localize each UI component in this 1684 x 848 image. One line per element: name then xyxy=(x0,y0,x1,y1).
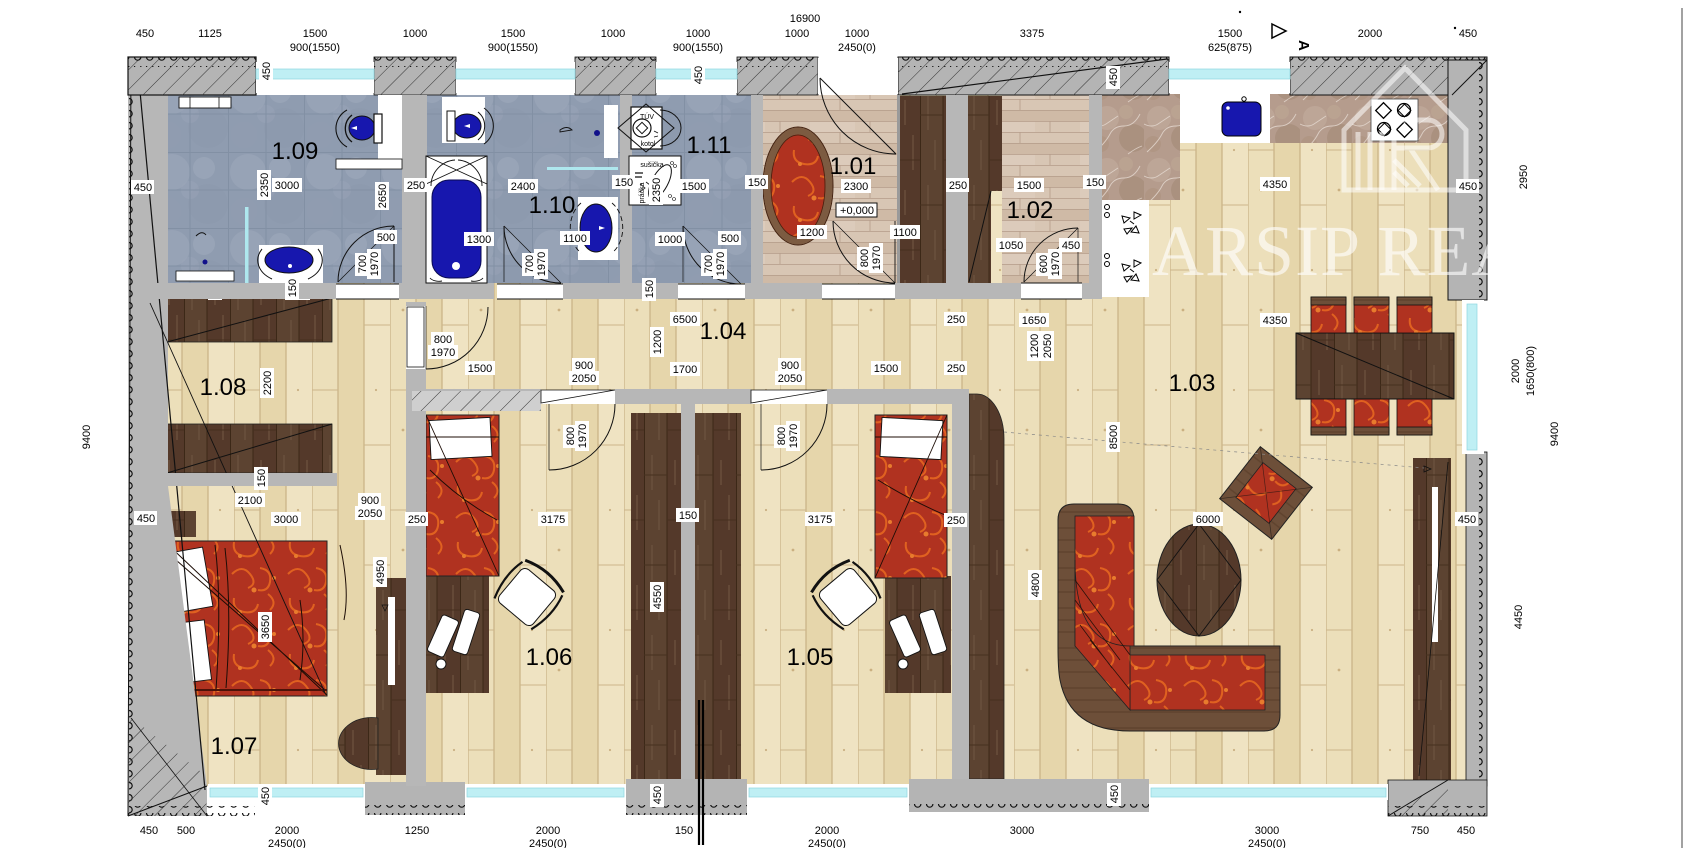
svg-text:1970: 1970 xyxy=(577,424,589,448)
svg-text:2450(0): 2450(0) xyxy=(838,42,876,54)
svg-text:500: 500 xyxy=(377,232,395,244)
svg-text:3000: 3000 xyxy=(274,514,298,526)
svg-text:1250: 1250 xyxy=(405,825,429,837)
svg-text:450: 450 xyxy=(1062,240,1080,252)
svg-text:450: 450 xyxy=(260,787,272,805)
svg-text:2650: 2650 xyxy=(377,184,389,208)
svg-text:2200: 2200 xyxy=(262,371,274,395)
svg-text:1200: 1200 xyxy=(800,227,824,239)
svg-text:2050: 2050 xyxy=(572,373,596,385)
svg-text:1970: 1970 xyxy=(715,252,727,276)
svg-text:1500: 1500 xyxy=(874,363,898,375)
svg-text:1970: 1970 xyxy=(788,424,800,448)
svg-text:1000: 1000 xyxy=(403,28,427,40)
svg-text:3000: 3000 xyxy=(1255,825,1279,837)
svg-text:2000: 2000 xyxy=(1358,28,1382,40)
svg-text:1700: 1700 xyxy=(673,364,697,376)
svg-text:1200: 1200 xyxy=(652,330,664,354)
svg-text:1970: 1970 xyxy=(1050,252,1062,276)
svg-text:1.06: 1.06 xyxy=(526,644,573,671)
svg-text:2050: 2050 xyxy=(1042,334,1054,358)
svg-text:2050: 2050 xyxy=(778,373,802,385)
svg-text:2100: 2100 xyxy=(238,495,262,507)
svg-text:2350: 2350 xyxy=(651,178,663,202)
svg-text:3000: 3000 xyxy=(1010,825,1034,837)
svg-text:450: 450 xyxy=(693,66,705,84)
svg-text:4450: 4450 xyxy=(1513,605,1525,629)
svg-text:6500: 6500 xyxy=(673,314,697,326)
svg-text:500: 500 xyxy=(177,825,195,837)
svg-text:450: 450 xyxy=(137,513,155,525)
svg-text:4350: 4350 xyxy=(1263,179,1287,191)
svg-text:900(1550): 900(1550) xyxy=(488,42,538,54)
svg-text:450: 450 xyxy=(1457,825,1475,837)
svg-text:150: 150 xyxy=(615,177,633,189)
svg-text:450: 450 xyxy=(1459,28,1477,40)
svg-text:2950: 2950 xyxy=(1518,165,1530,189)
svg-text:450: 450 xyxy=(1108,68,1120,86)
svg-text:3175: 3175 xyxy=(808,514,832,526)
svg-text:2000: 2000 xyxy=(536,825,560,837)
svg-text:TÚV: TÚV xyxy=(640,112,654,121)
svg-text:4350: 4350 xyxy=(1263,315,1287,327)
svg-text:1125: 1125 xyxy=(198,28,222,40)
svg-text:ARSIP REA: ARSIP REA xyxy=(1152,211,1524,291)
svg-text:450: 450 xyxy=(136,28,154,40)
svg-text:250: 250 xyxy=(947,515,965,527)
svg-text:2000: 2000 xyxy=(815,825,839,837)
svg-text:A: A xyxy=(1295,40,1312,51)
svg-text:4950: 4950 xyxy=(375,560,387,584)
svg-text:1000: 1000 xyxy=(785,28,809,40)
svg-text:2450(0): 2450(0) xyxy=(268,838,306,848)
svg-text:250: 250 xyxy=(407,180,425,192)
svg-text:450: 450 xyxy=(1459,181,1477,193)
svg-text:1300: 1300 xyxy=(467,234,491,246)
svg-text:450: 450 xyxy=(652,786,664,804)
svg-text:4800: 4800 xyxy=(1030,573,1042,597)
svg-text:450: 450 xyxy=(261,62,273,80)
svg-text:900: 900 xyxy=(781,360,799,372)
svg-text:450: 450 xyxy=(1109,785,1121,803)
svg-text:1970: 1970 xyxy=(431,347,455,359)
svg-text:450: 450 xyxy=(1458,514,1476,526)
svg-text:625(875): 625(875) xyxy=(1208,42,1252,54)
svg-text:3175: 3175 xyxy=(541,514,565,526)
svg-text:2450(0): 2450(0) xyxy=(529,838,567,848)
svg-text:2050: 2050 xyxy=(358,508,382,520)
svg-text:150: 150 xyxy=(675,825,693,837)
svg-text:3650: 3650 xyxy=(260,615,272,639)
svg-text:1200: 1200 xyxy=(1029,334,1041,358)
svg-text:250: 250 xyxy=(949,180,967,192)
svg-text:3375: 3375 xyxy=(1020,28,1044,40)
svg-text:250: 250 xyxy=(947,363,965,375)
svg-text:1.02: 1.02 xyxy=(1007,197,1054,224)
svg-text:150: 150 xyxy=(287,279,299,297)
svg-text:1500: 1500 xyxy=(468,363,492,375)
svg-text:1050: 1050 xyxy=(999,240,1023,252)
svg-text:2000: 2000 xyxy=(275,825,299,837)
svg-text:250: 250 xyxy=(408,514,426,526)
svg-text:1.09: 1.09 xyxy=(272,138,319,165)
svg-text:1500: 1500 xyxy=(501,28,525,40)
svg-text:1500: 1500 xyxy=(1218,28,1242,40)
svg-text:1500: 1500 xyxy=(303,28,327,40)
svg-text:1.10: 1.10 xyxy=(529,192,576,219)
svg-text:16900: 16900 xyxy=(790,13,821,25)
svg-text:1.04: 1.04 xyxy=(700,318,747,345)
svg-text:2000: 2000 xyxy=(1510,359,1522,383)
svg-text:6000: 6000 xyxy=(1196,514,1220,526)
svg-text:9400: 9400 xyxy=(81,425,93,449)
svg-text:1.05: 1.05 xyxy=(787,644,834,671)
svg-text:1000: 1000 xyxy=(686,28,710,40)
svg-text:1650: 1650 xyxy=(1022,315,1046,327)
svg-text:900: 900 xyxy=(361,495,379,507)
svg-text:150: 150 xyxy=(644,280,656,298)
svg-text:150: 150 xyxy=(679,510,697,522)
svg-text:1.11: 1.11 xyxy=(687,132,732,159)
svg-text:+0,000: +0,000 xyxy=(840,205,874,217)
svg-text:8500: 8500 xyxy=(1108,425,1120,449)
svg-text:1970: 1970 xyxy=(536,252,548,276)
svg-text:4550: 4550 xyxy=(652,585,664,609)
svg-text:1000: 1000 xyxy=(845,28,869,40)
svg-text:1000: 1000 xyxy=(658,234,682,246)
svg-text:1100: 1100 xyxy=(893,227,917,239)
svg-text:150: 150 xyxy=(1086,177,1104,189)
svg-text:450: 450 xyxy=(134,182,152,194)
svg-text:500: 500 xyxy=(721,233,739,245)
svg-text:2450(0): 2450(0) xyxy=(1248,838,1286,848)
svg-text:900(1550): 900(1550) xyxy=(673,42,723,54)
svg-text:900(1550): 900(1550) xyxy=(290,42,340,54)
svg-text:1.03: 1.03 xyxy=(1169,370,1216,397)
svg-text:3000: 3000 xyxy=(275,180,299,192)
svg-text:2350: 2350 xyxy=(259,173,271,197)
svg-text:1970: 1970 xyxy=(369,252,381,276)
svg-text:900: 900 xyxy=(575,360,593,372)
svg-text:450: 450 xyxy=(140,825,158,837)
svg-text:kotol: kotol xyxy=(641,141,656,148)
svg-text:1970: 1970 xyxy=(871,246,883,270)
svg-text:1.01: 1.01 xyxy=(830,153,877,180)
svg-text:1.08: 1.08 xyxy=(200,374,247,401)
svg-text:150: 150 xyxy=(748,177,766,189)
svg-text:9400: 9400 xyxy=(1549,422,1561,446)
svg-text:2450(0): 2450(0) xyxy=(808,838,846,848)
svg-text:800: 800 xyxy=(434,334,452,346)
svg-text:1.07: 1.07 xyxy=(211,733,258,760)
svg-text:2300: 2300 xyxy=(844,181,868,193)
svg-text:1100: 1100 xyxy=(563,233,587,245)
svg-text:1650(800): 1650(800) xyxy=(1525,346,1537,396)
svg-text:150: 150 xyxy=(256,469,268,487)
svg-text:1500: 1500 xyxy=(682,181,706,193)
svg-text:1000: 1000 xyxy=(601,28,625,40)
svg-text:1500: 1500 xyxy=(1017,180,1041,192)
svg-text:750: 750 xyxy=(1411,825,1429,837)
svg-text:250: 250 xyxy=(947,314,965,326)
